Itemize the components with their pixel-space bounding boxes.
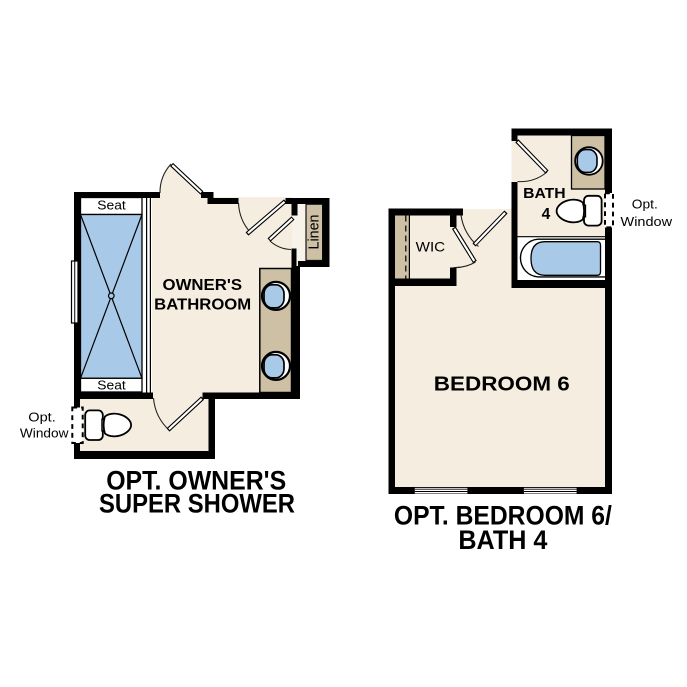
svg-text:BEDROOM 6: BEDROOM 6 bbox=[434, 374, 570, 396]
svg-text:Seat: Seat bbox=[97, 377, 126, 392]
svg-text:Seat: Seat bbox=[97, 197, 126, 212]
svg-text:Window: Window bbox=[621, 214, 673, 229]
svg-text:Linen: Linen bbox=[307, 215, 323, 250]
svg-text:WIC: WIC bbox=[416, 239, 446, 255]
svg-text:Window: Window bbox=[20, 426, 69, 441]
svg-text:SUPER SHOWER: SUPER SHOWER bbox=[99, 489, 295, 519]
svg-text:BATH: BATH bbox=[523, 186, 566, 202]
svg-text:OWNER'S: OWNER'S bbox=[163, 277, 243, 294]
svg-text:BATHROOM: BATHROOM bbox=[154, 296, 251, 313]
svg-text:BATH 4: BATH 4 bbox=[458, 525, 547, 555]
svg-text:4: 4 bbox=[542, 206, 551, 223]
svg-text:Opt.: Opt. bbox=[28, 409, 56, 424]
svg-text:Opt.: Opt. bbox=[632, 197, 658, 212]
